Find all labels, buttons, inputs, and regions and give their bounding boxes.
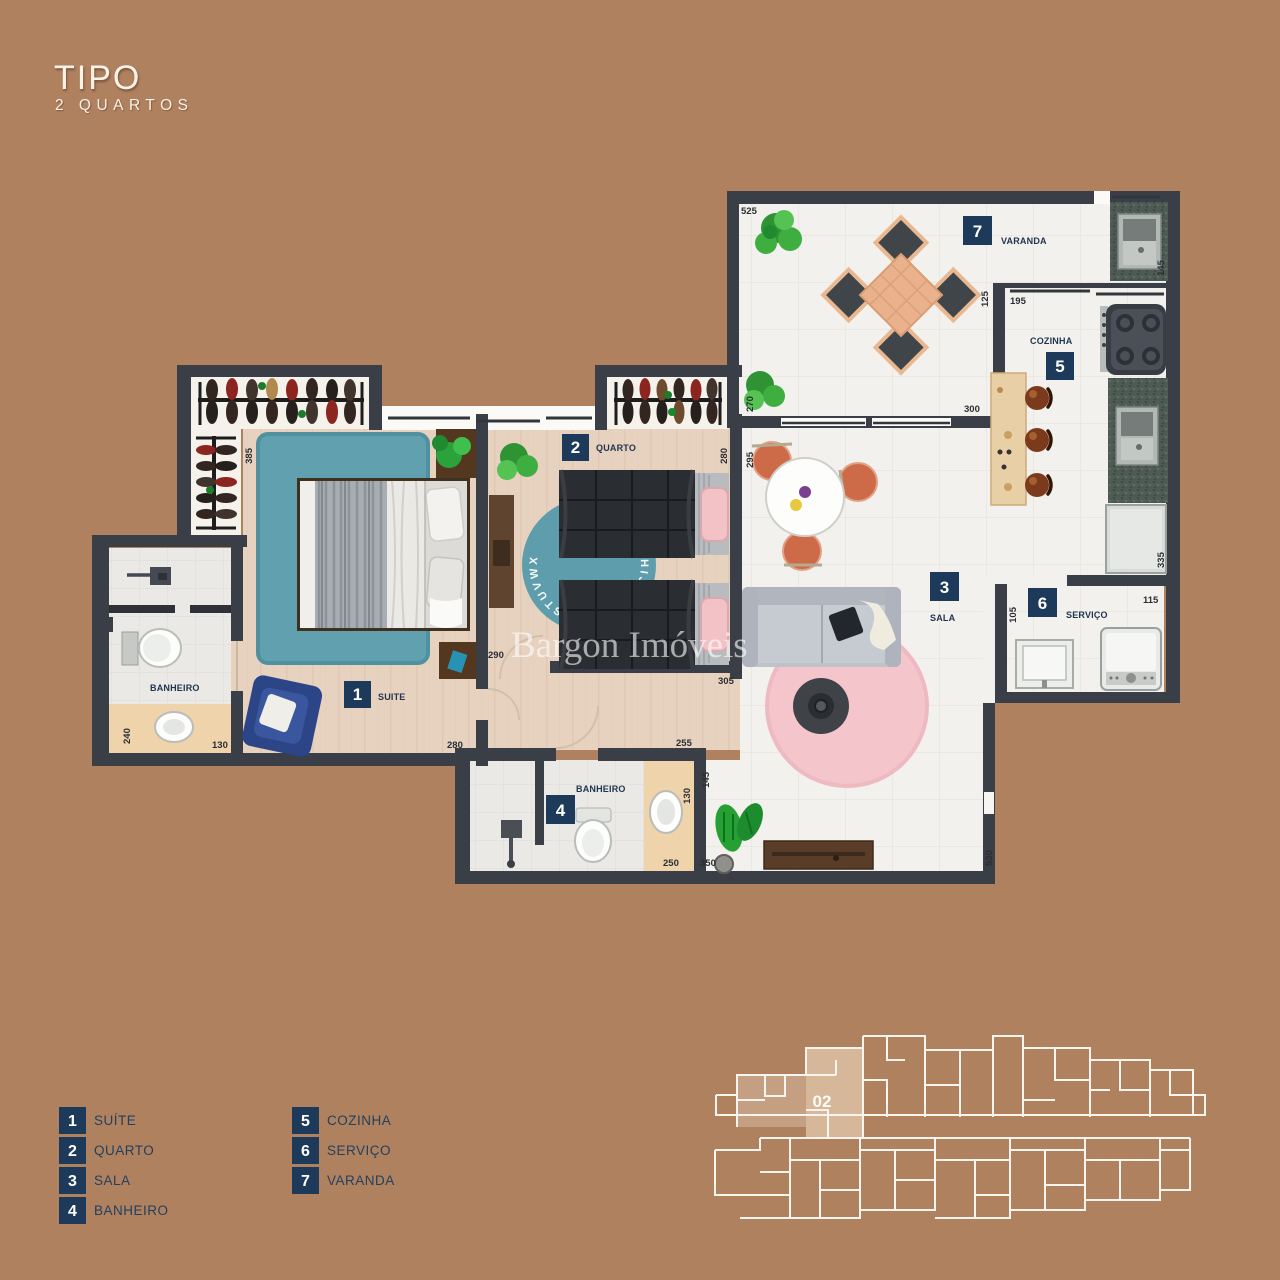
svg-text:105: 105 <box>1008 606 1019 623</box>
svg-text:115: 115 <box>1143 595 1159 606</box>
svg-text:290: 290 <box>488 650 504 661</box>
svg-text:3: 3 <box>68 1173 77 1190</box>
svg-text:4: 4 <box>68 1203 77 1220</box>
svg-text:1: 1 <box>68 1113 77 1130</box>
svg-text:530: 530 <box>984 850 995 866</box>
svg-text:3: 3 <box>940 578 949 597</box>
svg-text:VARANDA: VARANDA <box>1001 236 1047 246</box>
svg-text:280: 280 <box>719 448 730 464</box>
svg-text:COZINHA: COZINHA <box>327 1113 391 1128</box>
svg-text:COZINHA: COZINHA <box>1030 336 1073 346</box>
svg-text:2: 2 <box>68 1143 77 1160</box>
svg-text:240: 240 <box>122 728 133 744</box>
svg-text:5: 5 <box>1055 357 1064 376</box>
svg-text:QUARTO: QUARTO <box>94 1143 154 1158</box>
svg-text:350: 350 <box>700 858 716 869</box>
svg-text:BANHEIRO: BANHEIRO <box>150 683 200 693</box>
svg-text:2 QUARTOS: 2 QUARTOS <box>55 97 194 114</box>
svg-text:SUÍTE: SUÍTE <box>94 1113 136 1128</box>
svg-text:125: 125 <box>980 290 991 307</box>
svg-text:385: 385 <box>244 447 255 464</box>
svg-text:195: 195 <box>1010 296 1027 307</box>
svg-text:130: 130 <box>682 788 693 804</box>
svg-text:SALA: SALA <box>94 1173 131 1188</box>
svg-text:300: 300 <box>964 404 980 415</box>
svg-text:4: 4 <box>556 801 566 820</box>
svg-text:BANHEIRO: BANHEIRO <box>94 1203 169 1218</box>
svg-text:6: 6 <box>301 1143 310 1160</box>
svg-text:525: 525 <box>741 206 758 217</box>
svg-text:SERVIÇO: SERVIÇO <box>327 1143 391 1158</box>
svg-text:SERVIÇO: SERVIÇO <box>1066 610 1108 620</box>
svg-text:295: 295 <box>745 451 756 468</box>
svg-text:280: 280 <box>447 740 463 751</box>
svg-text:02: 02 <box>813 1092 832 1111</box>
svg-text:270: 270 <box>745 396 756 412</box>
svg-text:1: 1 <box>353 685 362 704</box>
svg-text:305: 305 <box>718 676 735 687</box>
svg-text:VARANDA: VARANDA <box>327 1173 395 1188</box>
svg-text:TIPO: TIPO <box>54 59 141 97</box>
svg-text:145: 145 <box>1156 259 1167 276</box>
svg-text:250: 250 <box>663 858 679 869</box>
svg-text:2: 2 <box>571 438 580 457</box>
svg-text:145: 145 <box>701 771 712 788</box>
svg-text:130: 130 <box>212 740 228 751</box>
svg-text:BANHEIRO: BANHEIRO <box>576 784 626 794</box>
svg-text:5: 5 <box>301 1113 310 1130</box>
svg-text:6: 6 <box>1038 594 1047 613</box>
svg-text:SUITE: SUITE <box>378 692 406 702</box>
svg-text:7: 7 <box>973 222 982 241</box>
svg-text:255: 255 <box>676 738 693 749</box>
svg-text:QUARTO: QUARTO <box>596 443 636 453</box>
svg-text:SALA: SALA <box>930 613 956 623</box>
svg-text:Bargon Imóveis: Bargon Imóveis <box>511 625 748 666</box>
svg-text:7: 7 <box>301 1173 310 1190</box>
svg-text:335: 335 <box>1156 551 1167 568</box>
